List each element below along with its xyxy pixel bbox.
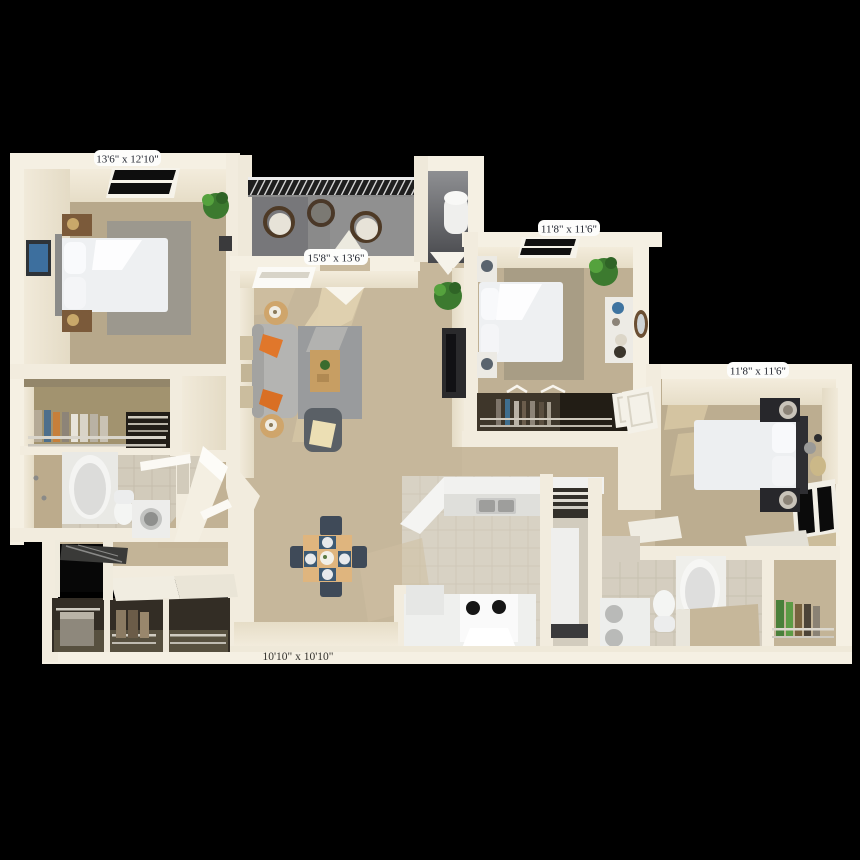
svg-text:13'6" x 12'10": 13'6" x 12'10" [96,154,158,166]
svg-text:11'8" x 11'6": 11'8" x 11'6" [730,366,786,378]
svg-text:15'8" x 13'6": 15'8" x 13'6" [308,253,365,265]
svg-text:11'8" x 11'6": 11'8" x 11'6" [541,224,597,236]
svg-text:10'10" x 10'10": 10'10" x 10'10" [262,651,333,663]
